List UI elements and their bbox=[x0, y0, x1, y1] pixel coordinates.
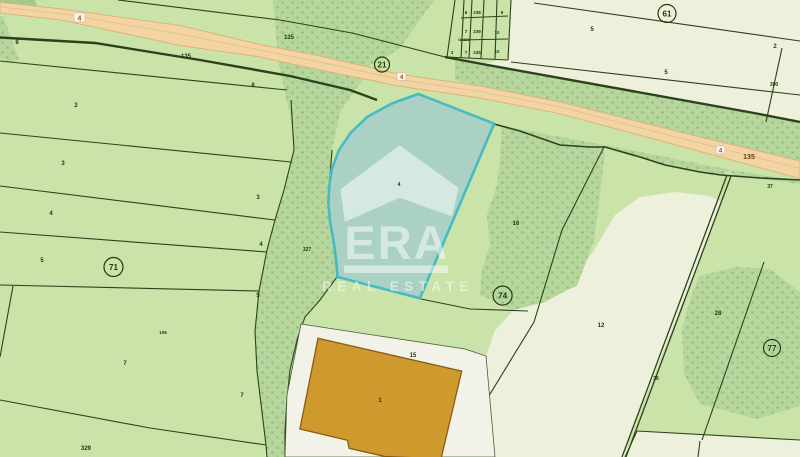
svg-text:15: 15 bbox=[410, 353, 417, 359]
svg-text:135: 135 bbox=[284, 35, 295, 41]
svg-text:235: 235 bbox=[473, 50, 481, 55]
svg-text:390: 390 bbox=[770, 82, 779, 88]
svg-text:ERA: ERA bbox=[344, 216, 449, 269]
svg-text:135: 135 bbox=[181, 54, 192, 60]
svg-text:28: 28 bbox=[715, 311, 722, 317]
svg-text:21: 21 bbox=[378, 61, 387, 70]
svg-text:61: 61 bbox=[663, 10, 672, 19]
svg-text:4: 4 bbox=[719, 148, 723, 155]
svg-text:71: 71 bbox=[109, 263, 118, 272]
svg-text:REAL ESTATE: REAL ESTATE bbox=[322, 279, 474, 294]
svg-text:327: 327 bbox=[303, 247, 312, 253]
svg-text:77: 77 bbox=[768, 344, 777, 353]
svg-text:74: 74 bbox=[498, 292, 507, 301]
svg-text:36: 36 bbox=[653, 376, 659, 382]
svg-text:C1821: C1821 bbox=[458, 37, 471, 42]
svg-text:105: 105 bbox=[159, 330, 167, 335]
svg-text:239: 239 bbox=[473, 29, 481, 34]
svg-text:4: 4 bbox=[400, 74, 404, 81]
svg-text:37: 37 bbox=[767, 184, 773, 190]
svg-text:10: 10 bbox=[494, 49, 500, 54]
svg-text:135: 135 bbox=[743, 154, 755, 161]
svg-text:16: 16 bbox=[513, 221, 520, 227]
svg-text:238: 238 bbox=[473, 10, 481, 15]
svg-text:10: 10 bbox=[494, 30, 500, 35]
svg-text:4: 4 bbox=[398, 182, 401, 188]
svg-text:12: 12 bbox=[598, 323, 605, 329]
svg-text:329: 329 bbox=[81, 446, 92, 452]
svg-text:4: 4 bbox=[78, 16, 82, 23]
